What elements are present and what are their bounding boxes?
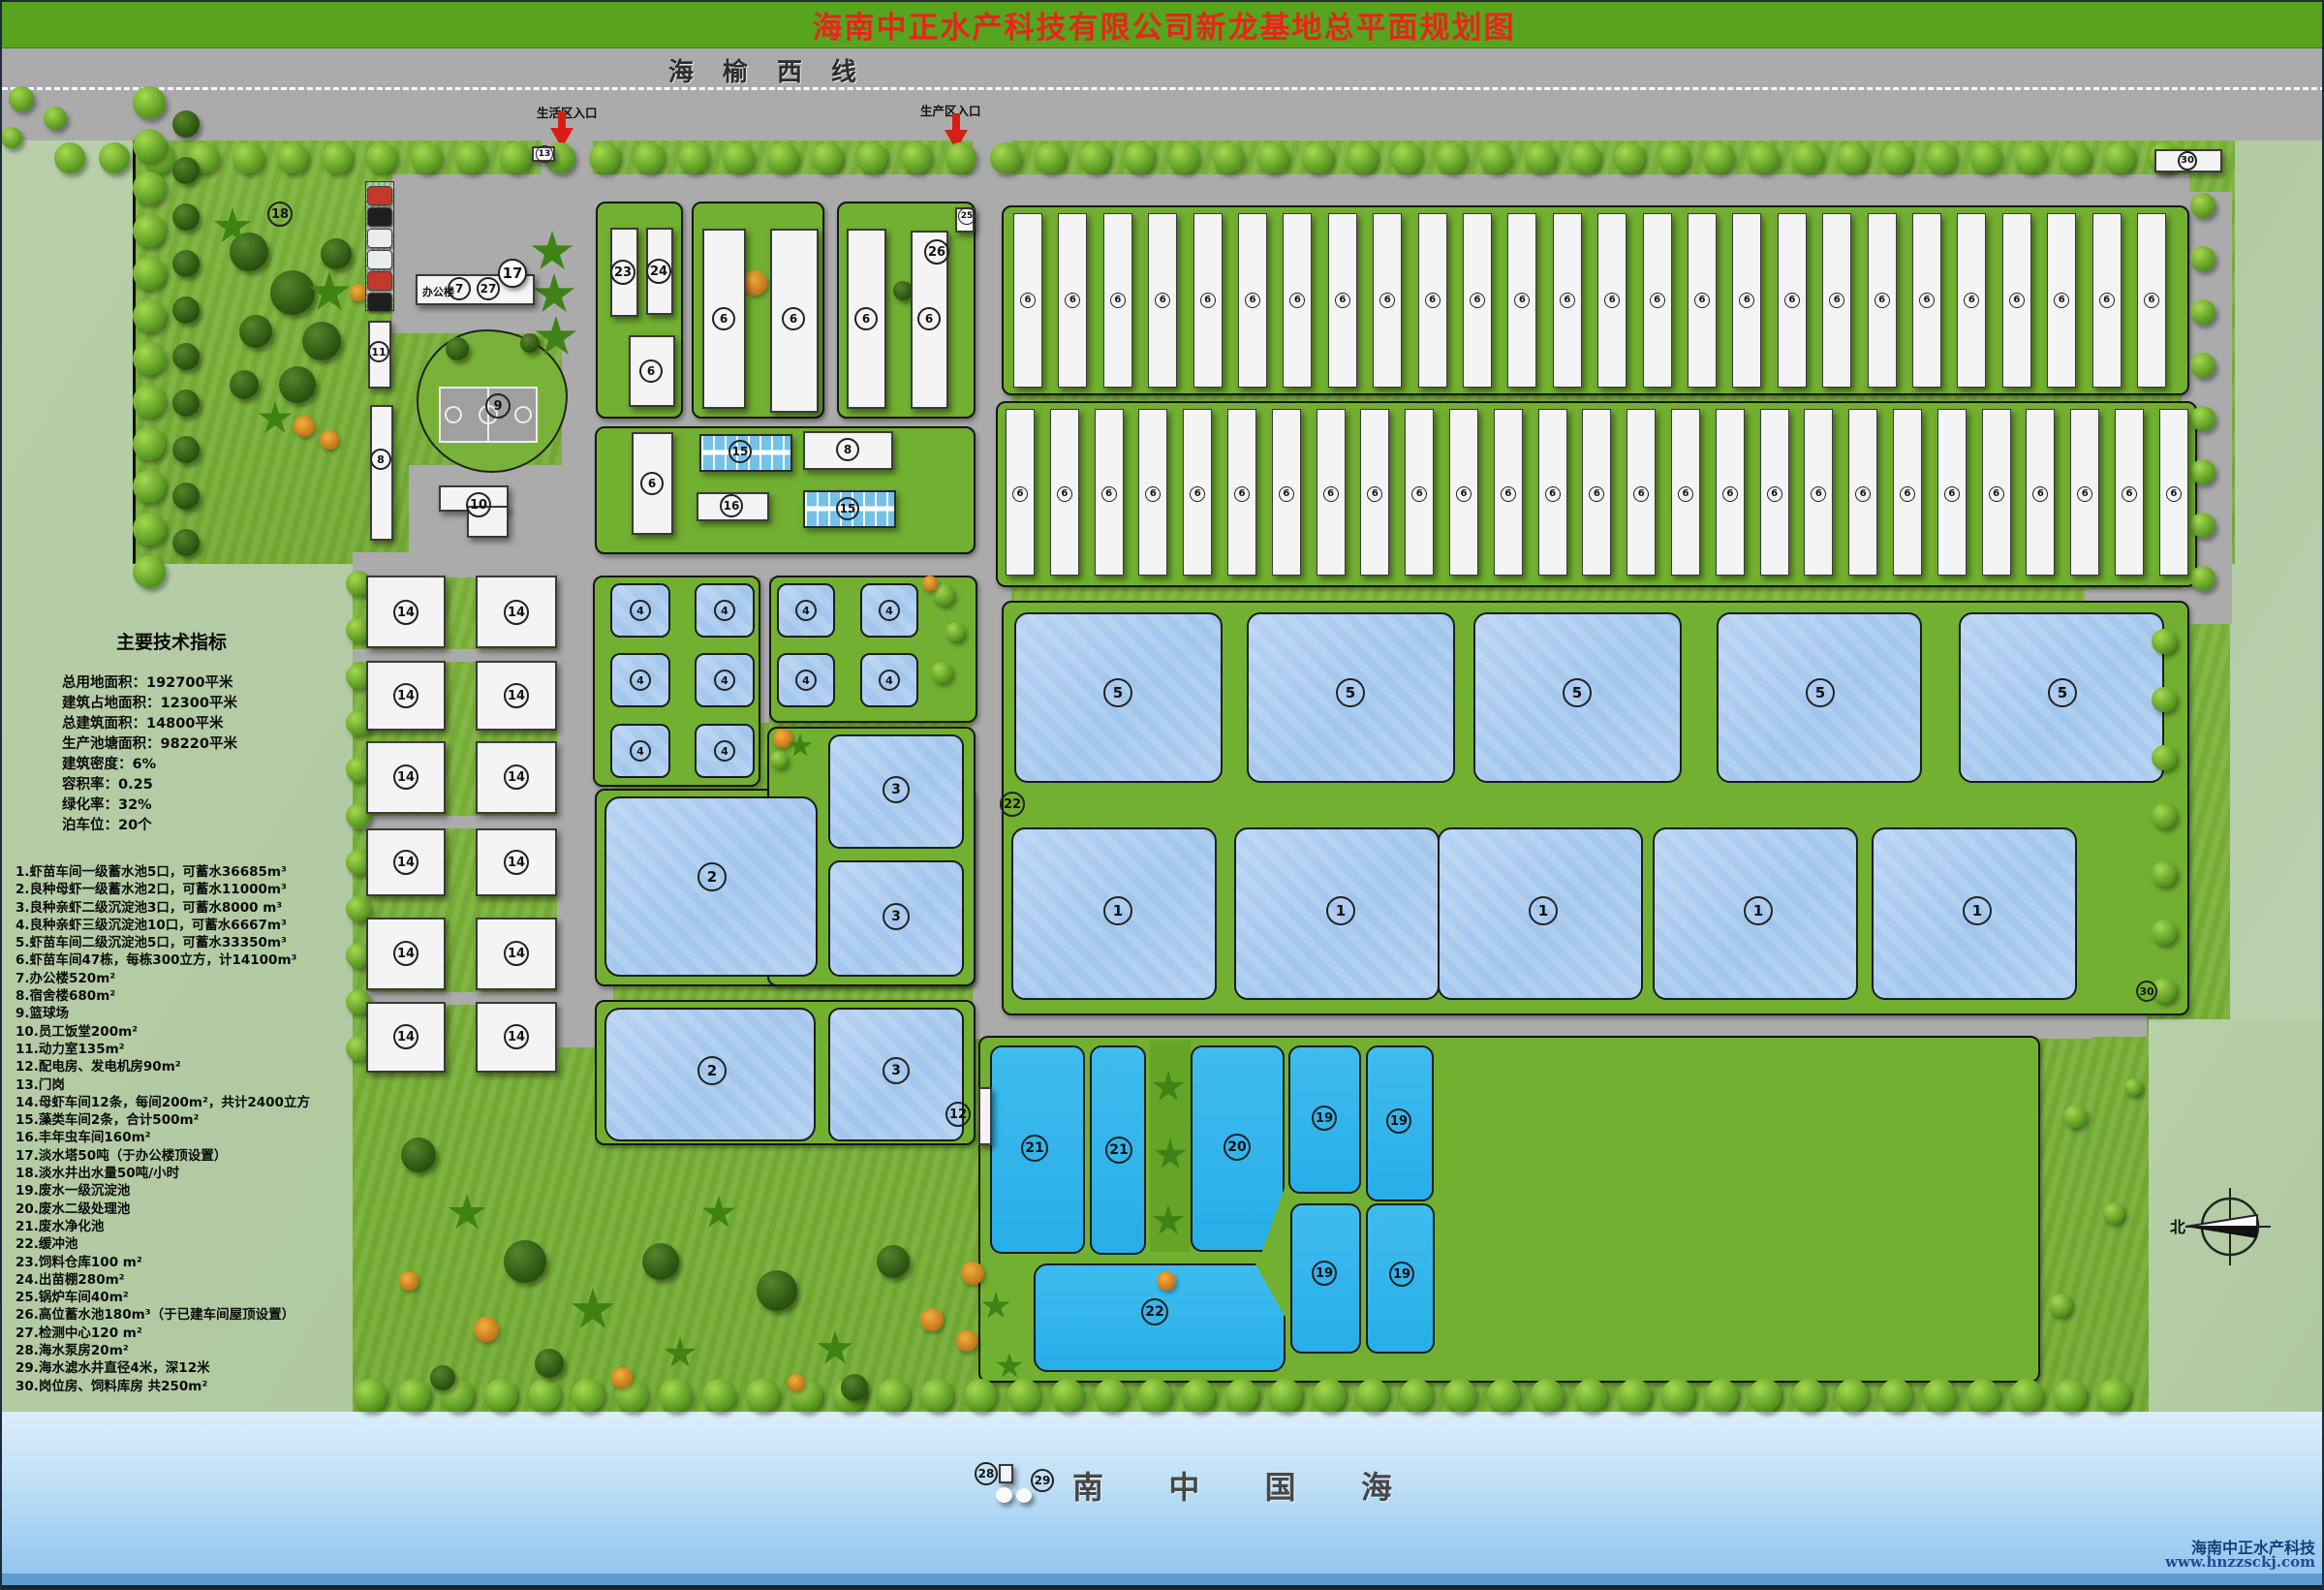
tree-icon: [172, 436, 200, 463]
compass-icon: 北: [2170, 1182, 2278, 1275]
tree-icon: [1531, 1379, 1564, 1412]
tree-icon: [133, 86, 166, 119]
tree-icon: [2124, 1078, 2142, 1096]
tree-icon: [1569, 142, 1600, 173]
tree-icon: [1391, 142, 1422, 173]
marker-6: 6: [1678, 486, 1693, 502]
legend-item: 27.检测中心120 m²: [15, 1325, 372, 1342]
tree-icon: [964, 1379, 997, 1412]
tree-icon: [2190, 246, 2216, 271]
tree-icon: [1749, 1379, 1782, 1412]
marker-19: 19: [1312, 1106, 1337, 1131]
tree-icon: [2152, 920, 2177, 945]
tree-icon: [1923, 1379, 1956, 1412]
marker-5: 5: [1103, 678, 1132, 707]
marker-5: 5: [1336, 678, 1365, 707]
tree-icon: [572, 1379, 604, 1412]
marker-6: 6: [640, 472, 664, 495]
marker-6: 6: [1155, 293, 1170, 308]
legend-item: 4.良种亲虾三级沉淀池10口，可蓄水6667m³: [15, 917, 372, 934]
tree-icon: [172, 343, 200, 370]
marker-3: 3: [883, 1057, 910, 1084]
legend-item: 24.出苗棚280m²: [15, 1271, 372, 1289]
marker-29: 29: [1031, 1469, 1054, 1492]
marker-1: 1: [1326, 896, 1355, 925]
marker-4: 4: [714, 600, 735, 621]
tree-icon: [401, 1138, 436, 1172]
tree-icon: [1658, 142, 1689, 173]
marker-5: 5: [1563, 678, 1592, 707]
legend-item: 25.锅炉车间40m²: [15, 1289, 372, 1306]
tree-icon: [2190, 353, 2216, 378]
car-icon: [367, 229, 392, 248]
marker-7: 7: [448, 277, 471, 300]
marker-6: 6: [1964, 293, 1979, 308]
tree-icon: [945, 622, 965, 641]
tree-icon: [901, 142, 932, 173]
tree-icon: [2152, 861, 2177, 887]
tree-icon: [1347, 142, 1378, 173]
tree-icon: [2010, 1379, 2043, 1412]
tree-icon: [1124, 142, 1155, 173]
marker-6: 6: [1379, 293, 1395, 308]
marker-22: 22: [1141, 1298, 1168, 1325]
marker-6: 6: [1767, 486, 1782, 502]
tree-icon: [1213, 142, 1244, 173]
tech-line: 泊车位：20个: [62, 816, 362, 836]
tree-icon: [133, 171, 166, 204]
legend-item: 17.淡水塔50吨（于办公楼顶设置）: [15, 1147, 372, 1165]
tree-icon: [484, 1379, 517, 1412]
marker-6: 6: [1604, 293, 1620, 308]
marker-6: 6: [1900, 486, 1915, 502]
marker-21: 21: [1021, 1135, 1048, 1162]
marker-6: 6: [2032, 486, 2048, 502]
road: [949, 1012, 2092, 1039]
tree-icon: [1879, 1379, 1912, 1412]
legend-item: 5.虾苗车间二级沉淀池5口，可蓄水33350m³: [15, 934, 372, 951]
marker-6: 6: [1514, 293, 1530, 308]
tree-icon: [1302, 142, 1333, 173]
car-icon: [367, 207, 392, 227]
marker-14: 14: [504, 1024, 529, 1049]
tree-icon: [2190, 459, 2216, 484]
tree-icon: [1035, 142, 1066, 173]
tree-icon: [230, 370, 259, 399]
legend-item: 2.良种母虾一级蓄水池2口，可蓄水11000m³: [15, 881, 372, 898]
marker-4: 4: [630, 670, 651, 691]
marker-14: 14: [393, 1024, 418, 1049]
tech-line: 总用地面积：192700平米: [62, 673, 362, 694]
tree-icon: [2152, 745, 2177, 770]
legend-item: 30.岗位房、饲料库房 共250m²: [15, 1378, 372, 1395]
tree-icon: [877, 1379, 910, 1412]
marker-14: 14: [504, 941, 529, 966]
image-bottom-border: [2, 1585, 2324, 1590]
tree-icon: [1836, 1379, 1869, 1412]
legend-item: 21.废水净化池: [15, 1218, 372, 1235]
car-icon: [367, 186, 392, 205]
tree-icon: [2103, 1202, 2124, 1224]
marker-4: 4: [795, 600, 817, 621]
tree-icon: [99, 142, 130, 173]
road-name: 海榆西线: [668, 52, 885, 88]
tree-icon: [133, 129, 166, 162]
tree-icon: [920, 1308, 944, 1331]
marker-3: 3: [883, 776, 910, 803]
marker-4: 4: [630, 600, 651, 621]
marker-6: 6: [2054, 293, 2069, 308]
tree-icon: [270, 270, 315, 315]
tree-icon: [1313, 1379, 1346, 1412]
legend-item: 20.废水二级处理池: [15, 1200, 372, 1218]
tree-icon: [1967, 1379, 1999, 1412]
marker-8: 8: [370, 449, 391, 470]
tree-icon: [172, 110, 200, 138]
tree-icon: [133, 214, 166, 247]
tree-icon: [770, 751, 788, 768]
tree-icon: [1661, 1379, 1694, 1412]
legend-item: 3.良种亲虾二级沉淀池3口，可蓄水8000 m³: [15, 899, 372, 917]
tree-icon: [133, 257, 166, 290]
marker-6: 6: [1411, 486, 1427, 502]
road: [353, 816, 559, 828]
tree-icon: [1881, 142, 1912, 173]
tree-icon: [2152, 687, 2177, 712]
marker-13: 13: [536, 145, 553, 163]
marker-14: 14: [504, 683, 529, 708]
marker-4: 4: [714, 670, 735, 691]
tree-icon: [841, 1374, 868, 1401]
marker-6: 6: [1020, 293, 1036, 308]
sea-edge-bar: [2, 1574, 2324, 1585]
marker-4: 4: [630, 740, 651, 762]
tree-icon: [1182, 1379, 1215, 1412]
road: [760, 576, 769, 723]
tree-icon: [430, 1365, 455, 1390]
tree-icon: [812, 142, 843, 173]
road-centerline: [2, 87, 2324, 90]
tree-icon: [920, 1379, 953, 1412]
marker-14: 14: [393, 764, 418, 790]
marker-19: 19: [1386, 1108, 1411, 1134]
marker-6: 6: [1589, 486, 1604, 502]
legend-item: 19.废水一级沉淀池: [15, 1182, 372, 1200]
production-entrance-label: 生产区入口: [920, 101, 981, 119]
legend-item: 23.饲料仓库100 m²: [15, 1254, 372, 1271]
tree-icon: [279, 366, 316, 403]
marker-14: 14: [504, 850, 529, 875]
building-12: [978, 1087, 992, 1145]
tech-line: 建筑占地面积：12300平米: [62, 694, 362, 714]
living-entrance-label: 生活区入口: [537, 103, 598, 121]
tree-icon: [1007, 1379, 1040, 1412]
marker-22: 22: [1000, 792, 1025, 817]
sea-name: 南中国海: [1072, 1463, 1392, 1508]
marker-27: 27: [477, 277, 500, 300]
marker-23: 23: [610, 260, 635, 285]
tree-icon: [2015, 142, 2046, 173]
marker-4: 4: [795, 670, 817, 691]
marker-14: 14: [504, 764, 529, 790]
marker-2: 2: [697, 862, 727, 891]
marker-6: 6: [1245, 293, 1260, 308]
site-plan-canvas: 南中国海 海南中正水产科技 www.hnzzsckj.com 海榆西线 生活区入…: [0, 0, 2324, 1590]
tree-icon: [702, 1379, 735, 1412]
tree-icon: [931, 662, 952, 683]
tree-icon: [399, 1271, 418, 1291]
marker-8: 8: [836, 438, 859, 461]
page-title: 海南中正水产科技有限公司新龙基地总平面规划图: [813, 3, 1516, 47]
marker-11: 11: [368, 341, 389, 362]
marker-30: 30: [2136, 981, 2157, 1002]
road: [392, 174, 609, 333]
marker-26: 26: [924, 239, 949, 265]
tree-icon: [2152, 803, 2177, 828]
tree-icon: [172, 529, 200, 556]
marker-6: 6: [1145, 486, 1161, 502]
tree-icon: [1257, 142, 1288, 173]
marker-6: 6: [1875, 293, 1890, 308]
tree-icon: [788, 1374, 805, 1391]
tree-icon: [1480, 142, 1511, 173]
legend-item: 10.员工饭堂200m²: [15, 1023, 372, 1041]
marker-21: 21: [1105, 1137, 1132, 1164]
tree-icon: [2063, 1105, 2087, 1128]
tree-icon: [520, 333, 540, 353]
marker-9: 9: [485, 393, 511, 419]
marker-15: 15: [836, 497, 859, 520]
tree-icon: [321, 238, 352, 269]
marker-17: 17: [498, 259, 527, 288]
watermark-url: www.hnzzsckj.com: [2075, 1553, 2315, 1571]
tree-icon: [366, 142, 397, 173]
tree-icon: [230, 233, 268, 271]
marker-6: 6: [1110, 293, 1126, 308]
building-28: [999, 1464, 1013, 1483]
marker-6: 6: [1279, 486, 1294, 502]
tree-icon: [773, 729, 792, 748]
tree-icon: [528, 1379, 561, 1412]
tree-icon: [2190, 406, 2216, 431]
marker-6: 6: [1855, 486, 1871, 502]
tree-icon: [1356, 1379, 1389, 1412]
marker-14: 14: [393, 600, 418, 625]
marker-6: 6: [2144, 293, 2159, 308]
marker-6: 6: [1944, 486, 1960, 502]
legend-item: 9.篮球场: [15, 1005, 372, 1022]
marker-6: 6: [1919, 293, 1935, 308]
marker-4: 4: [879, 670, 900, 691]
tree-icon: [172, 296, 200, 324]
marker-4: 4: [714, 740, 735, 762]
tree-icon: [1792, 142, 1823, 173]
tree-icon: [1837, 142, 1868, 173]
tech-line: 总建筑面积：14800平米: [62, 714, 362, 734]
legend-item: 28.海水泵房20m²: [15, 1342, 372, 1359]
tree-icon: [455, 142, 486, 173]
tree-icon: [133, 385, 166, 418]
tech-line: 容积率：0.25: [62, 775, 362, 795]
tree-icon: [1157, 1271, 1176, 1291]
marker-15: 15: [728, 440, 752, 463]
tree-icon: [172, 250, 200, 277]
marker-6: 6: [1335, 293, 1350, 308]
tree-icon: [642, 1243, 679, 1280]
tech-indicators-panel: 主要技术指标 总用地面积：192700平米建筑占地面积：12300平米总建筑面积…: [62, 628, 362, 836]
tree-icon: [922, 576, 938, 591]
marker-6: 6: [1012, 486, 1028, 502]
seawater-filter-well-icon: [996, 1487, 1012, 1503]
tree-icon: [294, 416, 315, 437]
tree-icon: [1618, 1379, 1651, 1412]
tree-icon: [1, 127, 22, 148]
tree-icon: [659, 1379, 692, 1412]
marker-18: 18: [267, 202, 293, 227]
tree-icon: [1574, 1379, 1607, 1412]
tree-icon: [893, 281, 913, 300]
marker-20: 20: [1224, 1134, 1251, 1161]
tree-icon: [1400, 1379, 1433, 1412]
legend-item: 15.藻类车间2条，合计500m²: [15, 1111, 372, 1129]
tree-icon: [133, 299, 166, 332]
legend-item: 12.配电房、发电机房90m²: [15, 1058, 372, 1076]
legend-item: 14.母虾车间12条，每间200m²，共计2400立方: [15, 1094, 372, 1111]
marker-4: 4: [879, 600, 900, 621]
tree-icon: [446, 337, 469, 360]
tree-icon: [2152, 629, 2177, 654]
marker-6: 6: [1633, 486, 1649, 502]
marker-6: 6: [2166, 486, 2182, 502]
marker-6: 6: [1101, 486, 1117, 502]
tree-icon: [2190, 193, 2216, 218]
marker-14: 14: [504, 600, 529, 625]
header-bar: 海南中正水产科技有限公司新龙基地总平面规划图: [2, 2, 2324, 48]
marker-6: 6: [2122, 486, 2137, 502]
marker-1: 1: [1963, 896, 1992, 925]
marker-6: 6: [1545, 486, 1561, 502]
legend-item: 6.虾苗车间47栋，每栋300立方，计14100m³: [15, 951, 372, 969]
tree-icon: [1138, 1379, 1171, 1412]
compass-north-label: 北: [2170, 1218, 2185, 1236]
tree-icon: [746, 1379, 779, 1412]
marker-2: 2: [697, 1056, 727, 1085]
tech-indicators-title: 主要技术指标: [116, 628, 362, 654]
marker-6: 6: [2077, 486, 2092, 502]
marker-30: 30: [2178, 151, 2197, 171]
tree-icon: [678, 142, 709, 173]
marker-3: 3: [883, 903, 910, 930]
tree-icon: [1095, 1379, 1128, 1412]
tree-icon: [1792, 1379, 1825, 1412]
marker-6: 6: [1739, 293, 1754, 308]
tree-icon: [2060, 142, 2091, 173]
tree-icon: [172, 390, 200, 417]
marker-6: 6: [1323, 486, 1339, 502]
road: [2, 47, 2324, 140]
legend-item: 29.海水滤水井直径4米，深12米: [15, 1359, 372, 1377]
marker-6: 6: [1811, 486, 1826, 502]
marker-6: 6: [1057, 486, 1072, 502]
tree-icon: [133, 470, 166, 503]
marker-14: 14: [393, 850, 418, 875]
marker-6: 6: [1234, 486, 1250, 502]
marker-24: 24: [646, 259, 671, 284]
tree-icon: [44, 107, 67, 130]
tree-icon: [54, 142, 85, 173]
tree-icon: [535, 1349, 564, 1378]
marker-1: 1: [1103, 896, 1132, 925]
tree-icon: [504, 1240, 546, 1283]
marker-6: 6: [1289, 293, 1305, 308]
car-icon: [367, 293, 392, 312]
marker-12: 12: [945, 1102, 971, 1127]
marker-6: 6: [1190, 486, 1205, 502]
tree-icon: [500, 142, 531, 173]
tree-icon: [397, 1379, 430, 1412]
marker-6: 6: [1470, 293, 1485, 308]
tree-icon: [877, 1245, 910, 1278]
tech-line: 建筑密度：6%: [62, 755, 362, 775]
marker-6: 6: [1829, 293, 1844, 308]
marker-16: 16: [720, 494, 743, 517]
marker-6: 6: [1989, 486, 2004, 502]
tree-icon: [589, 142, 620, 173]
tree-icon: [172, 483, 200, 510]
marker-6: 6: [639, 359, 663, 383]
marker-6: 6: [2099, 293, 2115, 308]
marker-6: 6: [917, 307, 941, 330]
tree-icon: [1614, 142, 1645, 173]
tree-icon: [2054, 1379, 2087, 1412]
tree-icon: [634, 142, 665, 173]
tree-icon: [1705, 1379, 1738, 1412]
building-8: [370, 405, 393, 541]
marker-6: 6: [1650, 293, 1665, 308]
tree-icon: [2190, 299, 2216, 325]
tree-icon: [2097, 1379, 2130, 1412]
marker-6: 6: [1367, 486, 1382, 502]
marker-6: 6: [854, 307, 878, 330]
tree-icon: [2104, 142, 2135, 173]
tree-icon: [1436, 142, 1467, 173]
road: [415, 174, 2189, 207]
marker-19: 19: [1312, 1261, 1337, 1286]
tree-icon: [133, 555, 166, 588]
tech-line: 生产池塘面积：98220平米: [62, 734, 362, 755]
car-icon: [367, 250, 392, 269]
marker-6: 6: [1501, 486, 1516, 502]
tech-line: 绿化率：32%: [62, 795, 362, 816]
legend-list: 1.虾苗车间一级蓄水池5口，可蓄水36685m³2.良种母虾一级蓄水池2口，可蓄…: [15, 863, 372, 1395]
tree-icon: [1525, 142, 1556, 173]
tree-icon: [474, 1317, 499, 1342]
tree-icon: [1970, 142, 2001, 173]
tree-icon: [611, 1367, 633, 1388]
sea-name-char: 南: [1072, 1463, 1103, 1508]
tree-icon: [1051, 1379, 1084, 1412]
legend-item: 1.虾苗车间一级蓄水池5口，可蓄水36685m³: [15, 863, 372, 881]
tree-icon: [133, 513, 166, 546]
marker-1: 1: [1529, 896, 1558, 925]
tree-icon: [277, 142, 308, 173]
tree-icon: [961, 1262, 984, 1285]
legend-item: 16.丰年虫车间160m²: [15, 1129, 372, 1146]
marker-6: 6: [1560, 293, 1575, 308]
marker-6: 6: [1425, 293, 1441, 308]
tree-icon: [945, 142, 976, 173]
legend-item: 22.缓冲池: [15, 1235, 372, 1253]
